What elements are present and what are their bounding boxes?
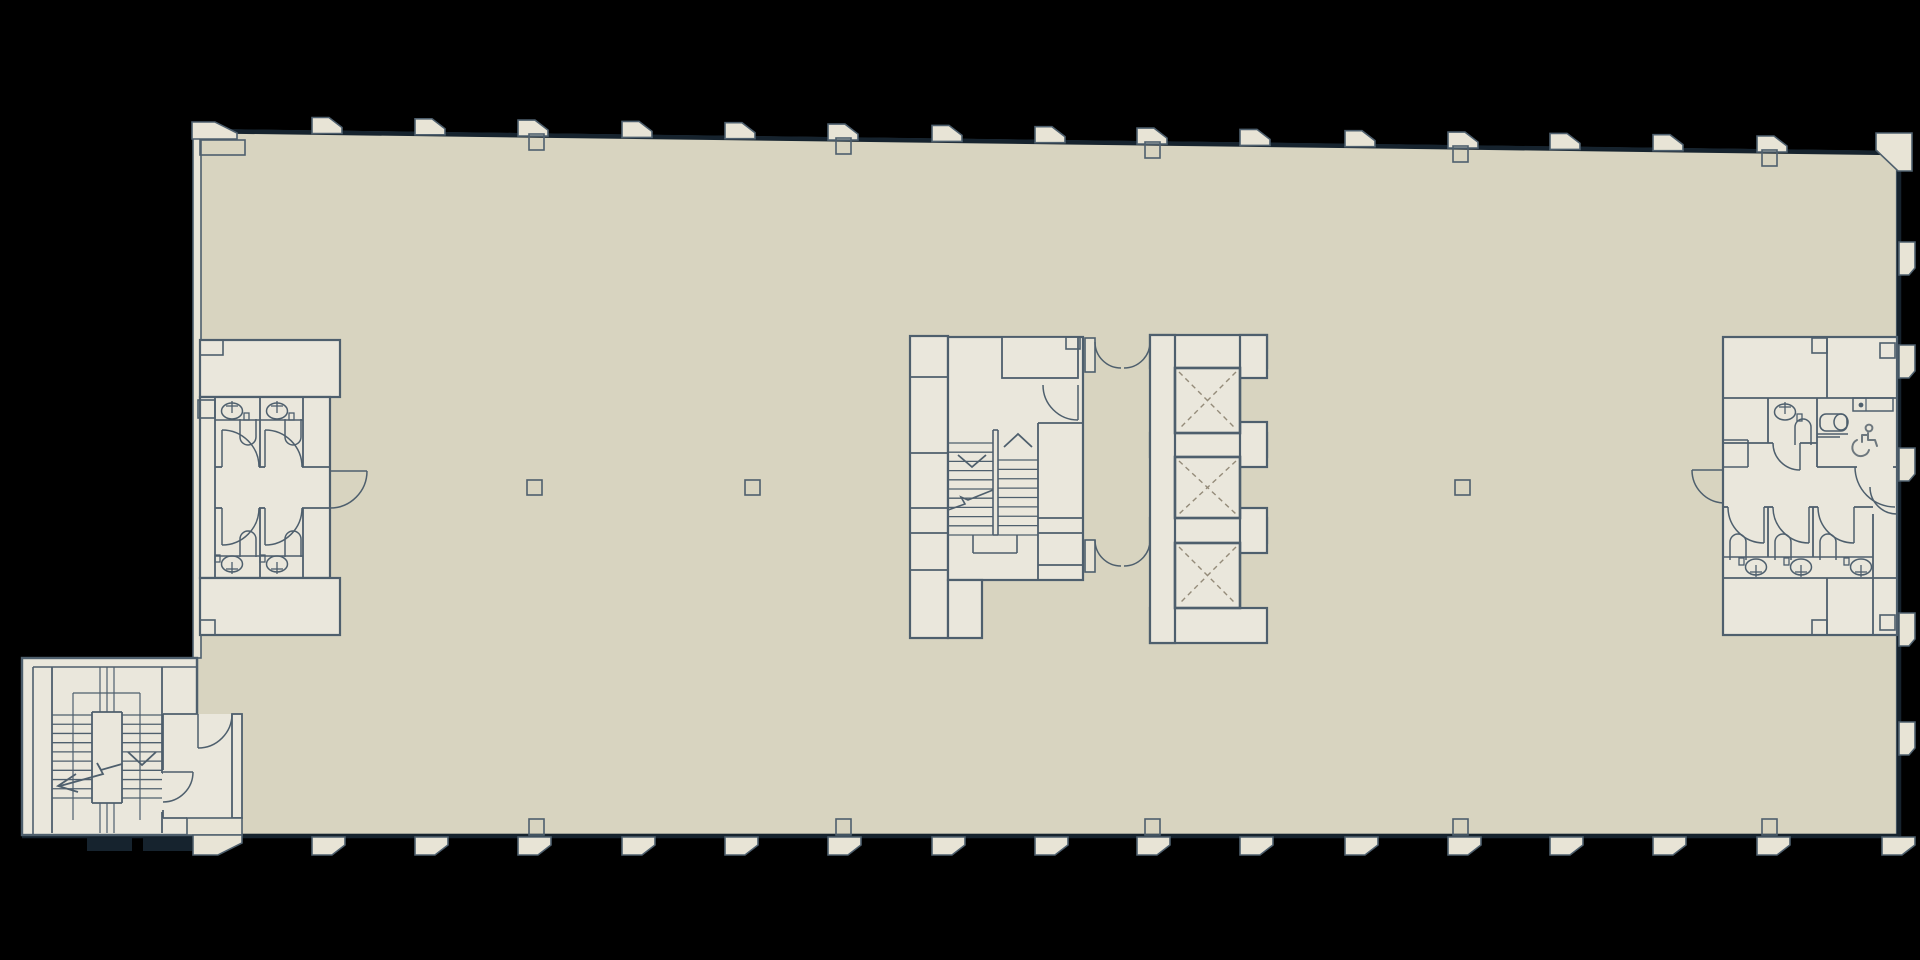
window-piers-right-poly-4 (1899, 722, 1915, 755)
window-piers-top-poly-4 (622, 121, 652, 137)
room-bottom (200, 578, 340, 635)
elevator-bank-rect-5 (1240, 335, 1267, 378)
window-piers-bottom-poly-2 (518, 837, 551, 855)
window-piers-bottom-poly-10 (1345, 837, 1378, 855)
window-piers-top-poly-8 (1035, 127, 1065, 143)
window-piers-bottom-poly-1 (415, 837, 448, 855)
window-piers-top-poly-1 (312, 118, 342, 134)
right-restrooms (1692, 337, 1897, 635)
window-piers-bottom-poly-3 (622, 837, 655, 855)
window-piers-top-poly-10 (1240, 129, 1270, 145)
corner-pier-bottom-left (193, 835, 242, 855)
stair-core-rect-30 (1085, 338, 1095, 372)
window-piers-top-poly-7 (932, 125, 962, 141)
window-piers-bottom-poly-4 (725, 837, 758, 855)
annex-window (87, 838, 132, 851)
right-restrooms-circle-30 (1859, 403, 1862, 406)
window-piers-top-poly-5 (725, 123, 755, 139)
window-piers-top-poly-0 (192, 122, 237, 139)
annex-window (143, 838, 192, 851)
window-piers-bottom-poly-11 (1448, 837, 1481, 855)
core-left-strip (910, 336, 948, 638)
elevator-bank-rect-7 (1240, 508, 1267, 553)
window-piers-bottom-poly-6 (932, 837, 965, 855)
window-piers-right-poly-2 (1899, 448, 1915, 481)
window-piers-bottom-poly-9 (1240, 837, 1273, 855)
window-piers-right-poly-1 (1899, 345, 1915, 378)
elevator-bank-rect-6 (1240, 422, 1267, 467)
room-top (200, 340, 340, 397)
window-piers-right (1899, 242, 1915, 755)
window-piers-bottom-poly-5 (828, 837, 861, 855)
floor-plan-stage (0, 0, 1920, 960)
floor-plan (0, 0, 1920, 960)
window-piers-right-poly-3 (1899, 613, 1915, 646)
stair-core-rect-31 (1085, 540, 1095, 572)
corner-pier-bottom-right (1882, 837, 1915, 855)
core-extension (948, 580, 982, 638)
window-piers-top-poly-13 (1550, 133, 1580, 149)
window-piers-bottom-poly-0 (312, 837, 345, 855)
window-piers-right-poly-0 (1899, 242, 1915, 275)
window-piers-bottom (312, 837, 1915, 855)
vestibule-rect-10 (187, 818, 242, 835)
vestibule-rect-0 (163, 714, 242, 818)
window-piers-bottom-poly-7 (1035, 837, 1068, 855)
vestibule-right-wall (232, 714, 242, 818)
right-block (1723, 337, 1897, 635)
stall-block (200, 397, 330, 578)
window-piers-top-poly-14 (1653, 135, 1683, 151)
window-piers-bottom-poly-14 (1757, 837, 1790, 855)
window-piers-top-poly-11 (1345, 131, 1375, 147)
elevator-bank-rect-4 (1150, 335, 1175, 643)
window-piers-bottom-poly-13 (1653, 837, 1686, 855)
window-piers-bottom-poly-12 (1550, 837, 1583, 855)
window-piers-top-poly-2 (415, 119, 445, 135)
window-piers-bottom-poly-8 (1137, 837, 1170, 855)
